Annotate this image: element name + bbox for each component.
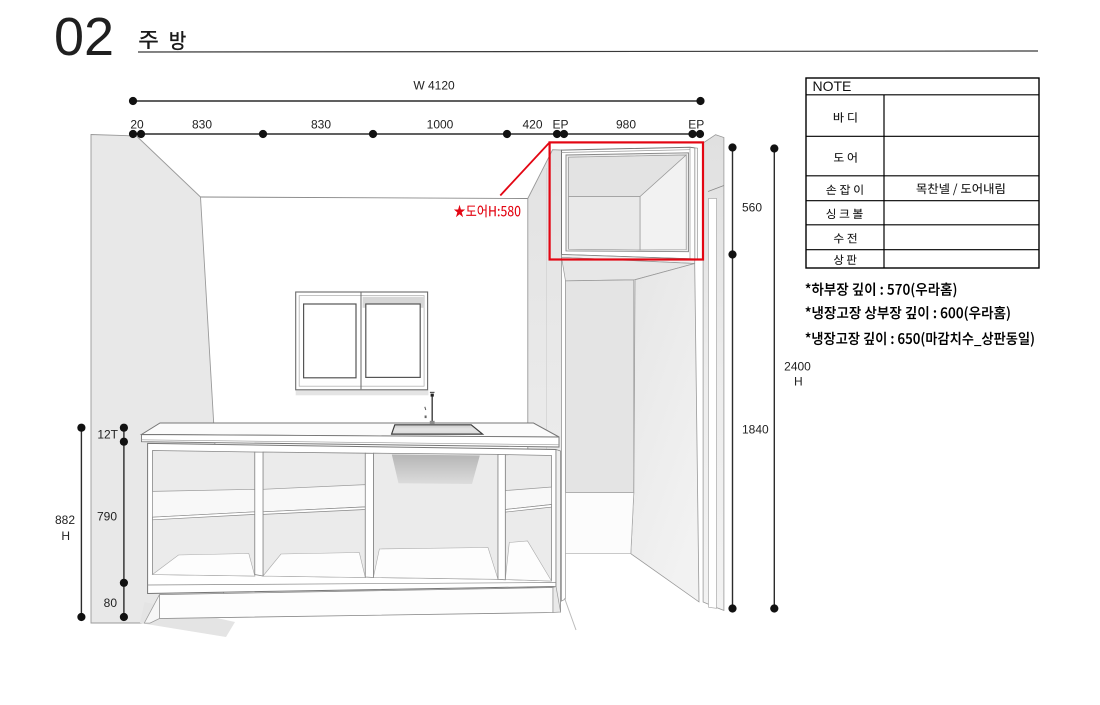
svg-text:420: 420	[522, 118, 542, 132]
svg-text:1000: 1000	[427, 118, 454, 132]
svg-text:NOTE: NOTE	[813, 78, 852, 94]
svg-text:EP: EP	[552, 118, 568, 132]
svg-text:980: 980	[616, 118, 636, 132]
svg-text:2400: 2400	[784, 359, 811, 373]
svg-text:02: 02	[54, 7, 114, 67]
svg-text:830: 830	[192, 118, 212, 132]
svg-text:790: 790	[97, 510, 117, 524]
svg-text:W 4120: W 4120	[413, 79, 455, 93]
svg-text:20: 20	[130, 118, 144, 132]
svg-text:H: H	[61, 529, 70, 543]
svg-text:830: 830	[311, 118, 331, 132]
svg-text:1840: 1840	[742, 423, 769, 437]
svg-text:80: 80	[104, 596, 118, 610]
svg-text:12T: 12T	[97, 428, 118, 442]
svg-text:560: 560	[742, 201, 762, 215]
svg-text:EP: EP	[688, 118, 704, 132]
svg-text:882: 882	[55, 513, 75, 527]
svg-text:H: H	[794, 375, 803, 389]
